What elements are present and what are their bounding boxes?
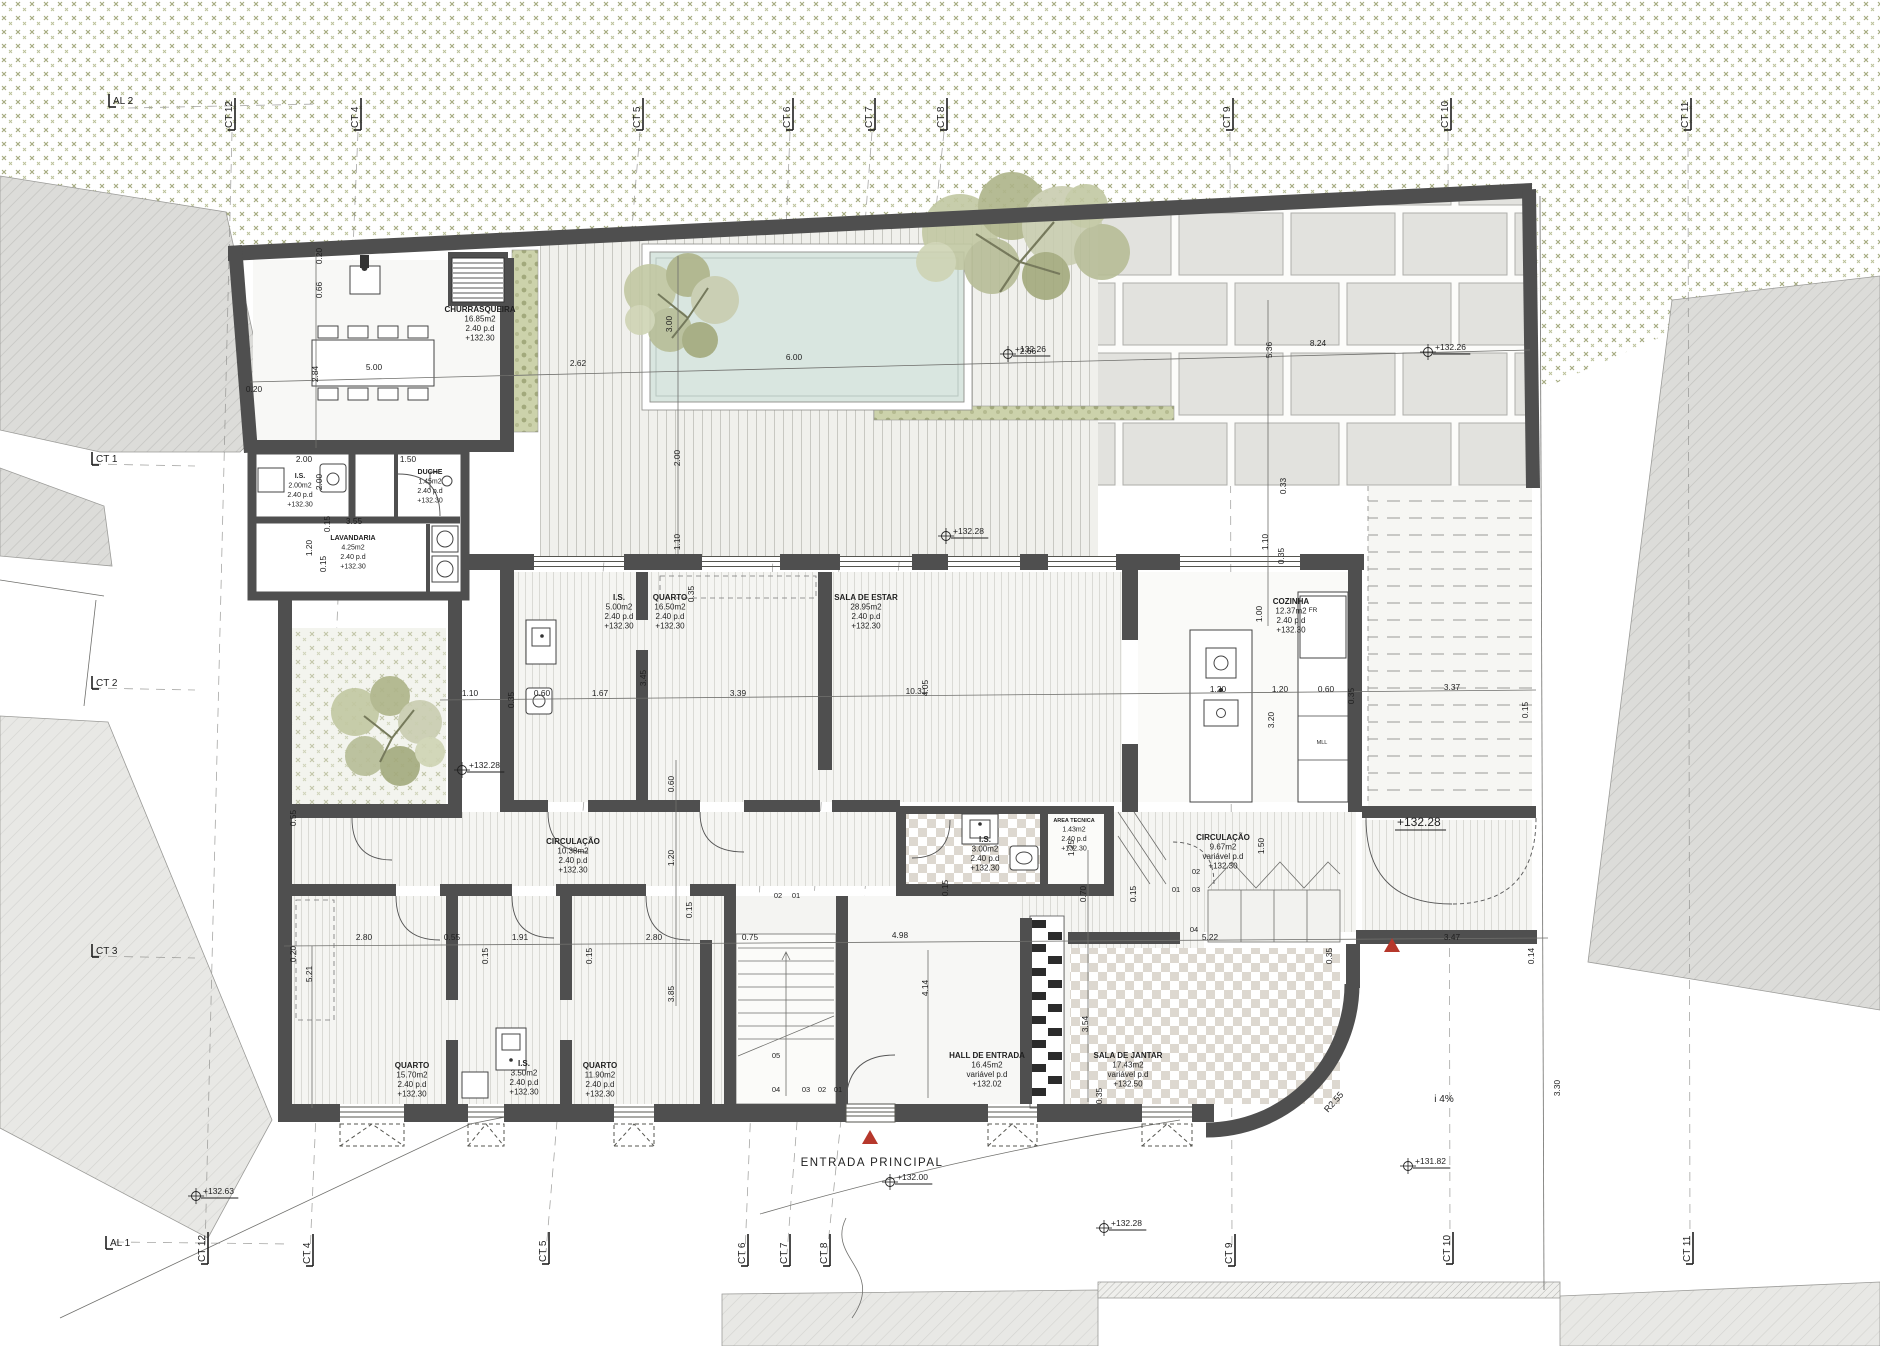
dimension-label: 5.21 <box>304 966 314 983</box>
side-stair-piano <box>1030 916 1064 1108</box>
dimension-label: 0.15 <box>322 516 332 533</box>
room-label-i-s-height: 2.40 p.d <box>287 492 312 499</box>
annotation-03: 03 <box>802 1085 810 1094</box>
grid-label-ct-4: CT 4 <box>302 1242 313 1264</box>
dimension-label: 3.00 <box>664 316 674 333</box>
dimension-label: 2.00 <box>296 454 313 464</box>
room-label-circula-o-height: variável p.d <box>1203 852 1244 861</box>
dimension-label: 0.60 <box>666 776 676 793</box>
room-label-hall-de-entrada-height: variável p.d <box>967 1070 1008 1079</box>
dimension-label: 1.67 <box>592 688 609 698</box>
elevation-marker: +132.28 <box>953 526 984 536</box>
room-label-circula-o: CIRCULAÇÃO <box>546 837 600 846</box>
grid-label-ct-11: CT 11 <box>1682 1235 1693 1262</box>
dimension-label: 0.15 <box>940 880 950 897</box>
annotation-fr: FR <box>1309 607 1318 614</box>
dimension-label: 1.20 <box>304 540 314 557</box>
grid-label-ct-5: CT 5 <box>538 1240 549 1262</box>
room-label-quarto-level: +132.30 <box>397 1090 427 1099</box>
annotation-02: 02 <box>774 891 782 900</box>
room-label-i-s-area: 5.00m2 <box>606 603 633 612</box>
room-label-churrasqueira: CHURRASQUEIRA <box>444 305 515 314</box>
room-label-duche: DUCHE <box>418 469 443 476</box>
room-label-i-s-height: 2.40 p.d <box>971 854 1000 863</box>
dimension-label: 0.35 <box>1346 688 1356 705</box>
dimension-label: 0.15 <box>1520 702 1530 719</box>
elevation-marker: +132.63 <box>203 1186 234 1196</box>
grid-label-ct-12: CT 12 <box>224 101 235 128</box>
hedge-strip-vertical <box>512 250 538 432</box>
dimension-label: 3.47 <box>1444 932 1461 942</box>
room-label-circula-o-area: 10.38m2 <box>557 847 589 856</box>
room-label-quarto-level: +132.30 <box>585 1090 615 1099</box>
dimension-label: 0.20 <box>288 946 298 963</box>
dimension-label: 2.00 <box>314 474 324 491</box>
annotation-05: 05 <box>772 1051 780 1060</box>
dimension-label: 0.35 <box>1324 948 1334 965</box>
dimension-label: 0.35 <box>1276 548 1286 565</box>
elevation-marker: +132.26 <box>1015 344 1046 354</box>
room-label-sala-de-jantar: SALA DE JANTAR <box>1094 1051 1163 1060</box>
dimension-label: 0.55 <box>288 810 298 827</box>
dimension-label: 1.91 <box>512 932 529 942</box>
dimension-label: 4.14 <box>920 980 930 997</box>
grid-label-ct-7: CT 7 <box>779 1242 790 1264</box>
room-label-i-s-level: +132.30 <box>287 502 313 509</box>
dimension-label: 5.36 <box>1264 342 1274 359</box>
room-label-sala-de-jantar-level: +132.50 <box>1113 1080 1143 1089</box>
annotation-02: 02 <box>818 1085 826 1094</box>
kitchen-counter <box>1298 592 1348 802</box>
room-label-i-s-level: +132.30 <box>509 1088 539 1097</box>
elevation-marker: +132.28 <box>469 760 500 770</box>
room-label-duche-level: +132.30 <box>417 498 443 505</box>
grid-label-ct-6: CT 6 <box>737 1242 748 1264</box>
grid-label-ct-3: CT 3 <box>96 946 118 957</box>
dimension-label: 5.22 <box>1202 932 1219 942</box>
room-label-hall-de-entrada: HALL DE ENTRADA <box>949 1051 1025 1060</box>
dimension-label: 2.62 <box>570 358 587 368</box>
dimension-label: 3.30 <box>1552 1080 1562 1097</box>
grid-label-ct-2: CT 2 <box>96 678 118 689</box>
room-label-circula-o-level: +132.30 <box>1208 862 1238 871</box>
annotation-03: 03 <box>1192 885 1200 894</box>
grid-label-ct-8: CT 8 <box>936 106 947 128</box>
dimension-label: 0.60 <box>534 688 551 698</box>
room-label-quarto-height: 2.40 p.d <box>398 1080 427 1089</box>
dimension-label: 8.24 <box>1310 338 1327 348</box>
annotation-04: 04 <box>1190 925 1198 934</box>
dimension-label: 2.80 <box>356 932 373 942</box>
elevation-marker: +132.28 <box>1111 1218 1142 1228</box>
room-label-sala-de-estar-area: 28.95m2 <box>850 603 882 612</box>
room-label-cozinha-level: +132.30 <box>1276 626 1306 635</box>
room-label-i-s-area: 3.00m2 <box>972 845 999 854</box>
room-label-i-s-area: 3.50m2 <box>511 1069 538 1078</box>
dimension-label: 0.15 <box>584 948 594 965</box>
room-label-quarto-height: 2.40 p.d <box>656 612 685 621</box>
room-label-sala-de-jantar-area: 17.43m2 <box>1112 1061 1144 1070</box>
grid-label-ct-9: CT 9 <box>1222 106 1233 128</box>
grid-label-ct-7: CT 7 <box>864 106 875 128</box>
dimension-label: 3.45 <box>638 670 648 687</box>
annotation-entrada-principal: ENTRADA PRINCIPAL <box>801 1157 944 1169</box>
dimension-label: 1.50 <box>1256 838 1266 855</box>
dimension-label: 0.15 <box>684 902 694 919</box>
dimension-label: 0.55 <box>444 932 461 942</box>
dimension-label: 5.00 <box>366 362 383 372</box>
room-label-circula-o-height: 2.40 p.d <box>559 856 588 865</box>
dimension-label: 1.10 <box>1260 534 1270 551</box>
room-label-duche-height: 2.40 p.d <box>417 488 442 495</box>
dimension-label: 0.20 <box>314 248 324 265</box>
room-label-lavandaria-area: 4.25m2 <box>341 545 364 552</box>
room-label-hall-de-entrada-level: +132.02 <box>972 1080 1002 1089</box>
dimension-label: 4.98 <box>892 930 909 940</box>
dimension-label: 0.66 <box>314 282 324 299</box>
room-label-cozinha: COZINHA <box>1273 597 1310 606</box>
room-label-area-tecnica-area: 1.43m2 <box>1062 827 1085 834</box>
dimension-label: 0.20 <box>246 384 263 394</box>
dimension-label: 3.39 <box>730 688 747 698</box>
elevation-marker: +131.82 <box>1415 1156 1446 1166</box>
grid-label-ct-11: CT 11 <box>1680 101 1691 128</box>
room-label-circula-o-area: 9.67m2 <box>1210 843 1237 852</box>
dimension-label: 0.14 <box>1526 948 1536 965</box>
room-label-i-s: I.S. <box>979 835 991 844</box>
grid-label-ct-6: CT 6 <box>782 106 793 128</box>
room-label-churrasqueira-level: +132.30 <box>465 334 495 343</box>
room-label-cozinha-height: 2.40 p.d <box>1277 616 1306 625</box>
main-staircase <box>736 934 836 1104</box>
dimension-label: 2.00 <box>672 450 682 467</box>
dimension-label: 6.00 <box>786 352 803 362</box>
dimension-label: 1.10 <box>462 688 479 698</box>
room-label-churrasqueira-area: 16.85m2 <box>464 315 496 324</box>
elevation-marker: +132.00 <box>897 1172 928 1182</box>
annotation-mll: MLL <box>1317 740 1328 746</box>
dimension-label: 2.84 <box>310 366 320 383</box>
grid-label-ct-10: CT 10 <box>1442 1235 1453 1262</box>
room-label-sala-de-estar-level: +132.30 <box>851 622 881 631</box>
entrance-threshold <box>846 1104 895 1122</box>
grid-label-al-1: AL 1 <box>110 1238 131 1249</box>
room-label-quarto-area: 15.70m2 <box>396 1071 428 1080</box>
room-label-lavandaria-height: 2.40 p.d <box>340 554 365 561</box>
room-label-quarto-area: 16.50m2 <box>654 603 686 612</box>
grid-label-ct-4: CT 4 <box>350 106 361 128</box>
dimension-label: 3.20 <box>1266 712 1276 729</box>
grid-label-ct-1: CT 1 <box>96 454 118 465</box>
bbq-grill <box>452 258 504 302</box>
room-label-i-s-level: +132.30 <box>604 622 634 631</box>
dimension-label: 2.80 <box>646 932 663 942</box>
dimension-label: 1.20 <box>666 850 676 867</box>
annotation-01: 01 <box>1172 885 1180 894</box>
room-label-quarto: QUARTO <box>395 1061 430 1070</box>
dimension-label: 3.54 <box>1080 1016 1090 1033</box>
dimension-label: 1.00 <box>1254 606 1264 623</box>
dimension-label: 0.35 <box>506 692 516 709</box>
grid-label-ct-5: CT 5 <box>632 106 643 128</box>
annotation-02: 02 <box>1192 867 1200 876</box>
dimension-label: 0.15 <box>480 948 490 965</box>
grid-label-ct-8: CT 8 <box>819 1242 830 1264</box>
dimension-label: 1.50 <box>400 454 417 464</box>
room-label-quarto-area: 11.90m2 <box>585 1071 616 1080</box>
dimension-label: 1.25 <box>1066 840 1076 857</box>
room-label-circula-o-level: +132.30 <box>558 866 588 875</box>
dimension-label: 0.15 <box>1128 886 1138 903</box>
room-label-quarto-height: 2.40 p.d <box>586 1080 615 1089</box>
dimension-label: 0.33 <box>1278 478 1288 495</box>
room-label-duche-area: 1.45m2 <box>418 479 441 486</box>
dimension-label: 3.37 <box>1444 682 1461 692</box>
dimension-label: 4.05 <box>920 680 930 697</box>
dimension-label: 1.20 <box>1272 684 1289 694</box>
room-label-i-s-height: 2.40 p.d <box>605 612 634 621</box>
grid-label-ct-12: CT 12 <box>197 1235 208 1262</box>
room-label-sala-de-estar-height: 2.40 p.d <box>852 612 881 621</box>
room-label-sala-de-jantar-height: variável p.d <box>1108 1070 1149 1079</box>
annotation-01: 01 <box>834 1085 842 1094</box>
room-label-i-s: I.S. <box>518 1059 530 1068</box>
room-label-quarto: QUARTO <box>583 1061 618 1070</box>
annotation-04: 04 <box>772 1085 780 1094</box>
dimension-label: 0.15 <box>318 556 328 573</box>
annotation-01: 01 <box>792 891 800 900</box>
room-label-sala-de-estar: SALA DE ESTAR <box>834 593 898 602</box>
room-label-hall-de-entrada-area: 16.45m2 <box>971 1061 1003 1070</box>
dimension-label: 3.85 <box>666 986 676 1003</box>
room-label-i-s: I.S. <box>295 473 306 480</box>
room-label-cozinha-area: 12.37m2 <box>1275 607 1307 616</box>
room-label-quarto: QUARTO <box>653 593 688 602</box>
grid-label-ct-10: CT 10 <box>1440 101 1451 128</box>
dimension-label: 0.75 <box>742 932 759 942</box>
room-label-area-tecnica: AREA TECNICA <box>1053 818 1094 824</box>
room-label-quarto-level: +132.30 <box>655 622 685 631</box>
grid-label-al-2: AL 2 <box>113 96 134 107</box>
dimension-label: 0.35 <box>1094 1088 1104 1105</box>
kitchen-island <box>1190 630 1252 802</box>
room-label-i-s-level: +132.30 <box>970 864 1000 873</box>
annotation-i-4: i 4% <box>1434 1094 1454 1105</box>
dimension-label: 0.70 <box>1078 886 1088 903</box>
dimension-label: 1.10 <box>672 534 682 551</box>
room-label-i-s-area: 2.00m2 <box>288 483 311 490</box>
elevation-marker: +132.28 <box>1397 815 1441 829</box>
dimension-label: 0.60 <box>1318 684 1335 694</box>
room-label-churrasqueira-height: 2.40 p.d <box>466 324 495 333</box>
dimension-label: 1.20 <box>1210 684 1227 694</box>
floor-plan-drawing: CHURRASQUEIRA16.85m22.40 p.d+132.30I.S.2… <box>0 0 1880 1346</box>
room-label-i-s: I.S. <box>613 593 625 602</box>
elevation-marker: +132.26 <box>1435 342 1466 352</box>
room-label-i-s-height: 2.40 p.d <box>510 1078 539 1087</box>
dimension-label: 0.35 <box>686 586 696 603</box>
room-label-lavandaria: LAVANDARIA <box>330 535 375 542</box>
dimension-label: 3.55 <box>346 516 363 526</box>
grid-label-ct-9: CT 9 <box>1224 1242 1235 1264</box>
room-label-circula-o: CIRCULAÇÃO <box>1196 833 1250 842</box>
room-label-lavandaria-level: +132.30 <box>340 564 366 571</box>
